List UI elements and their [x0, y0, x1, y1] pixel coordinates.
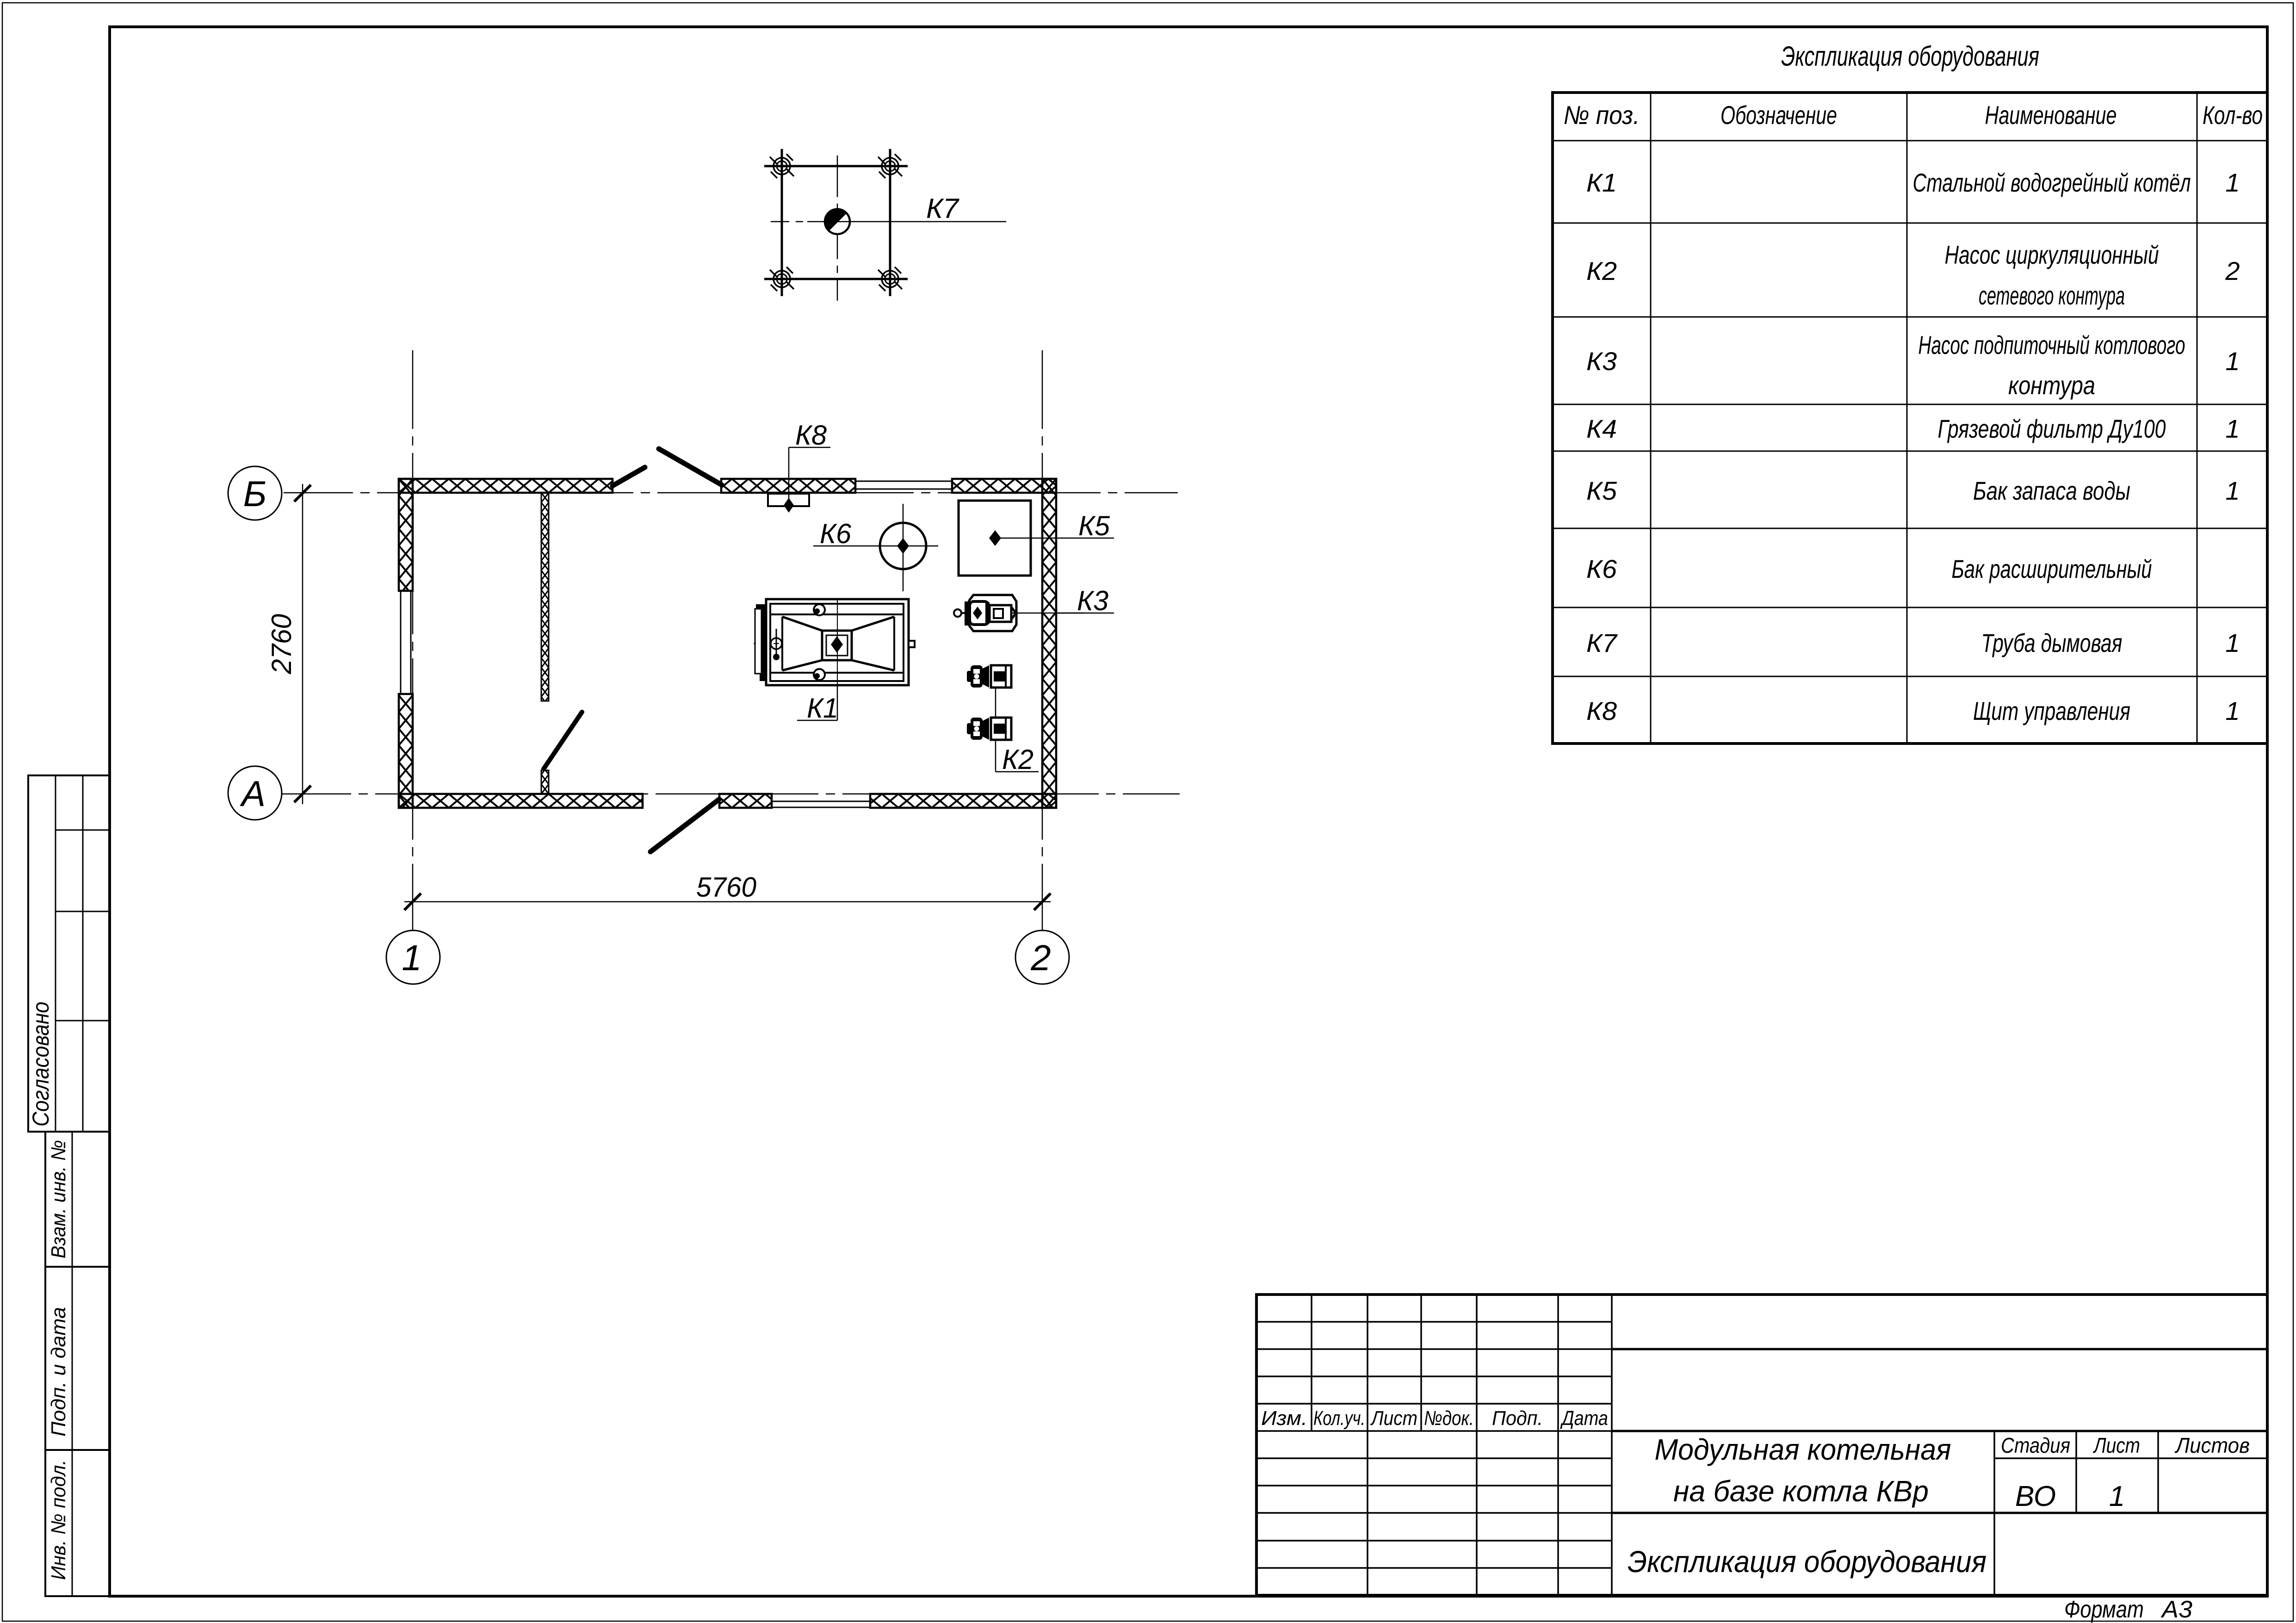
svg-text:на базе котла КВр: на базе котла КВр	[1673, 1474, 1929, 1508]
svg-text:Щит управления: Щит управления	[1973, 696, 2130, 725]
svg-text:Листов: Листов	[2174, 1433, 2250, 1457]
svg-text:К5: К5	[1078, 510, 1110, 541]
svg-text:Кол.уч.: Кол.уч.	[1313, 1407, 1365, 1430]
svg-text:Грязевой фильтр Ду100: Грязевой фильтр Ду100	[1938, 414, 2166, 443]
svg-text:Наименование: Наименование	[1985, 100, 2117, 130]
svg-text:Б: Б	[243, 473, 267, 514]
svg-text:2760: 2760	[266, 614, 297, 675]
svg-text:1: 1	[2225, 476, 2240, 505]
svg-text:К5: К5	[1586, 476, 1617, 505]
svg-text:К3: К3	[1077, 585, 1108, 616]
svg-text:Изм.: Изм.	[1261, 1407, 1307, 1430]
svg-text:К6: К6	[820, 518, 852, 549]
svg-text:Лист: Лист	[2092, 1433, 2140, 1457]
svg-text:Обозначение: Обозначение	[1720, 100, 1837, 130]
svg-text:№док.: №док.	[1424, 1407, 1474, 1430]
svg-text:Экспликация оборудования: Экспликация оборудования	[1781, 41, 2039, 72]
svg-text:Насос циркуляционный: Насос циркуляционный	[1945, 240, 2159, 269]
svg-text:1: 1	[2225, 414, 2240, 443]
svg-text:К2: К2	[1586, 256, 1617, 285]
svg-text:5760: 5760	[696, 872, 756, 903]
svg-text:Подп. и дата: Подп. и дата	[47, 1307, 70, 1437]
svg-text:К6: К6	[1586, 554, 1617, 583]
svg-text:К8: К8	[795, 420, 827, 451]
svg-text:Модульная котельная: Модульная котельная	[1655, 1433, 1951, 1466]
svg-text:1: 1	[2225, 347, 2240, 376]
svg-text:Экспликация оборудования: Экспликация оборудования	[1628, 1544, 1987, 1579]
svg-text:Бак запаса воды: Бак запаса воды	[1973, 476, 2130, 505]
svg-text:Стадия: Стадия	[2001, 1433, 2070, 1457]
svg-text:1: 1	[402, 937, 421, 978]
svg-text:1: 1	[2225, 696, 2240, 725]
svg-text:Стальной водогрейный котёл: Стальной водогрейный котёл	[1913, 168, 2191, 197]
svg-text:контура: контура	[2008, 371, 2095, 400]
svg-text:К2: К2	[1002, 744, 1034, 775]
svg-text:Формат: Формат	[2064, 1596, 2144, 1623]
svg-text:1: 1	[2109, 1481, 2125, 1512]
svg-text:сетевого контура: сетевого контура	[1979, 281, 2125, 310]
svg-text:ВО: ВО	[2015, 1481, 2056, 1512]
svg-text:Насос подпиточный котлового: Насос подпиточный котлового	[1918, 330, 2185, 359]
svg-text:К1: К1	[1586, 168, 1617, 197]
svg-text:1: 1	[2225, 168, 2240, 197]
svg-text:2: 2	[1030, 937, 1051, 978]
svg-text:Согласовано: Согласовано	[28, 1002, 54, 1127]
svg-text:Лист: Лист	[1370, 1407, 1417, 1430]
svg-text:К4: К4	[1586, 414, 1617, 443]
svg-text:Инв. № подл.: Инв. № подл.	[47, 1460, 70, 1580]
svg-text:Взам. инв. №: Взам. инв. №	[47, 1140, 70, 1258]
svg-text:А3: А3	[2160, 1596, 2192, 1623]
svg-text:К1: К1	[807, 693, 838, 724]
svg-text:Подп.: Подп.	[1492, 1407, 1543, 1430]
svg-text:Труба дымовая: Труба дымовая	[1981, 628, 2123, 657]
svg-text:Кол-во: Кол-во	[2203, 100, 2263, 130]
svg-text:№ поз.: № поз.	[1564, 100, 1640, 130]
svg-text:К8: К8	[1586, 696, 1617, 725]
svg-text:К3: К3	[1586, 347, 1617, 376]
svg-text:К7: К7	[926, 193, 960, 224]
svg-text:1: 1	[2225, 628, 2240, 657]
svg-text:2: 2	[2225, 256, 2240, 285]
svg-text:Дата: Дата	[1560, 1407, 1608, 1430]
svg-text:К7: К7	[1586, 628, 1618, 657]
svg-text:Бак расширительный: Бак расширительный	[1952, 554, 2152, 583]
svg-text:А: А	[240, 773, 266, 814]
